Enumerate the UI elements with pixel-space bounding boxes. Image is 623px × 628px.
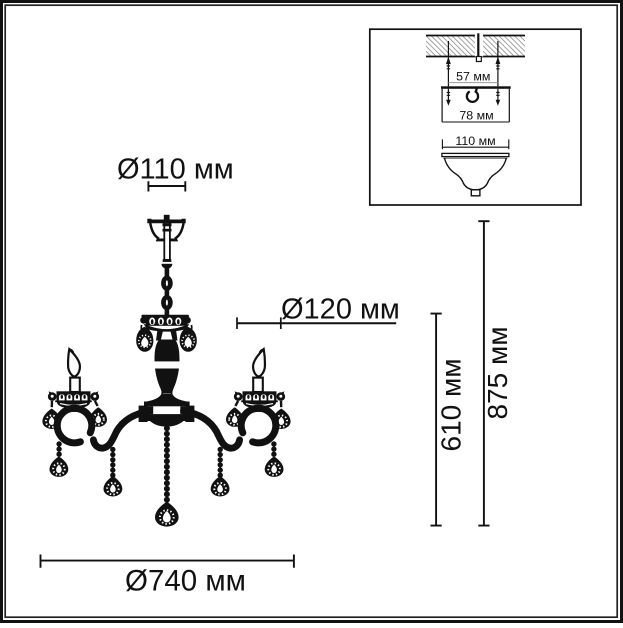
svg-text:Ø120 мм: Ø120 мм — [281, 294, 400, 326]
svg-text:57 мм: 57 мм — [456, 69, 490, 83]
svg-text:Ø110 мм: Ø110 мм — [117, 154, 234, 186]
svg-text:875 мм: 875 мм — [482, 327, 513, 420]
svg-text:110 мм: 110 мм — [455, 134, 495, 148]
svg-text:610 мм: 610 мм — [436, 359, 467, 452]
svg-text:Ø740 мм: Ø740 мм — [125, 565, 246, 598]
svg-text:78 мм: 78 мм — [459, 108, 493, 122]
